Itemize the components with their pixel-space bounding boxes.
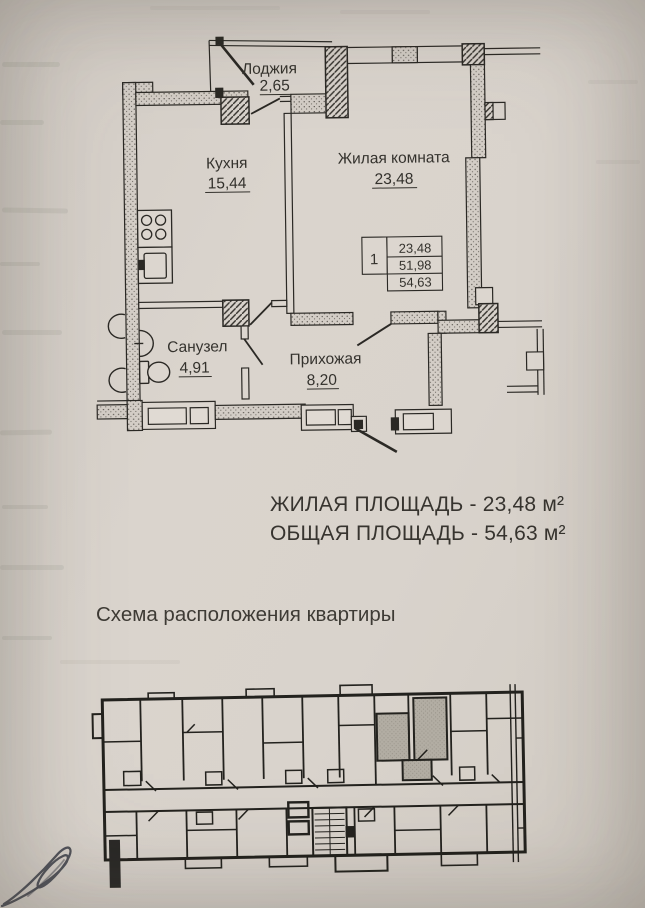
leader-line-entry: [355, 428, 396, 453]
living-room-door-leaf: [357, 324, 391, 345]
hallway-top-wall: [291, 311, 438, 346]
stamp-rooms-count: 1: [370, 251, 379, 268]
paper-artifact: [2, 330, 62, 335]
kitchen-fixtures: [137, 210, 172, 283]
stairs-icon: [312, 807, 347, 856]
paper-artifact: [0, 430, 52, 436]
paper-artifact: [596, 160, 640, 164]
entry-walls: [428, 287, 545, 406]
apartment-floor-plan: Лоджия 2,65 Кухня 15,44 Жилая комната 23…: [82, 22, 548, 478]
living-area-line: ЖИЛАЯ ПЛОЩАДЬ - 23,48 м²: [270, 490, 566, 519]
room-label-kitchen: Кухня: [206, 155, 248, 173]
room-area-hallway: 8,20: [307, 372, 338, 389]
bottom-wall-windows: [97, 396, 452, 456]
window: [306, 410, 335, 425]
room-area-kitchen: 15,44: [208, 175, 247, 193]
neighbour-fixtures: [108, 314, 126, 392]
paper-artifact: [2, 636, 52, 640]
kitchen-door-leaf: [250, 303, 272, 325]
room-label-living-room: Жилая комната: [338, 149, 451, 168]
living-room-right-wall: [464, 64, 507, 308]
section-heading: Схема расположения квартиры: [96, 603, 396, 627]
living-room-window-band: [347, 43, 540, 67]
upper-subwalls: [103, 718, 524, 787]
kitchen-living-divider: [284, 113, 294, 313]
stamp-area-no-loggia: 51,98: [399, 257, 432, 272]
neighbour-toilet-icon: [109, 368, 126, 392]
neighbour-sink-icon: [108, 314, 125, 338]
window: [403, 413, 433, 429]
paper-artifact: [588, 80, 638, 84]
paper-artifact: [2, 62, 60, 67]
window: [338, 410, 351, 425]
paper-artifact: [0, 565, 64, 570]
paper-artifact: [2, 505, 48, 509]
paper-artifact: [60, 660, 180, 664]
room-area-bathroom: 4,91: [179, 359, 209, 376]
window: [148, 408, 186, 425]
room-label-bathroom: Санузел: [167, 338, 228, 356]
paper-artifact: [150, 6, 280, 10]
total-area-line: ОБЩАЯ ПЛОЩАДЬ - 54,63 м²: [270, 519, 566, 548]
window: [190, 408, 208, 424]
stamp-living-area: 23,48: [399, 240, 432, 255]
signature: [0, 834, 138, 908]
room-label-loggia: Лоджия: [242, 60, 297, 78]
paper-artifact: [340, 10, 430, 14]
room-area-loggia: 2,65: [260, 77, 290, 94]
toilet-icon: [140, 361, 170, 383]
highlighted-apartment: [376, 697, 448, 780]
column-hatched: [221, 97, 249, 124]
paper-artifact: [0, 120, 44, 125]
kitchen-sink-icon: [138, 247, 172, 283]
area-summary: ЖИЛАЯ ПЛОЩАДЬ - 23,48 м² ОБЩАЯ ПЛОЩАДЬ -…: [270, 490, 566, 548]
stamp-total-area: 54,63: [399, 274, 432, 289]
paper-artifact: [2, 207, 68, 213]
room-label-hallway: Прихожая: [289, 350, 361, 368]
building-floor-scheme: [86, 678, 540, 902]
room-area-living-room: 23,48: [375, 171, 414, 189]
bathroom-door-leaf: [244, 339, 262, 365]
stove-icon: [137, 210, 172, 247]
paper-artifact: [0, 262, 40, 266]
balcony-door-leaf: [251, 98, 280, 113]
